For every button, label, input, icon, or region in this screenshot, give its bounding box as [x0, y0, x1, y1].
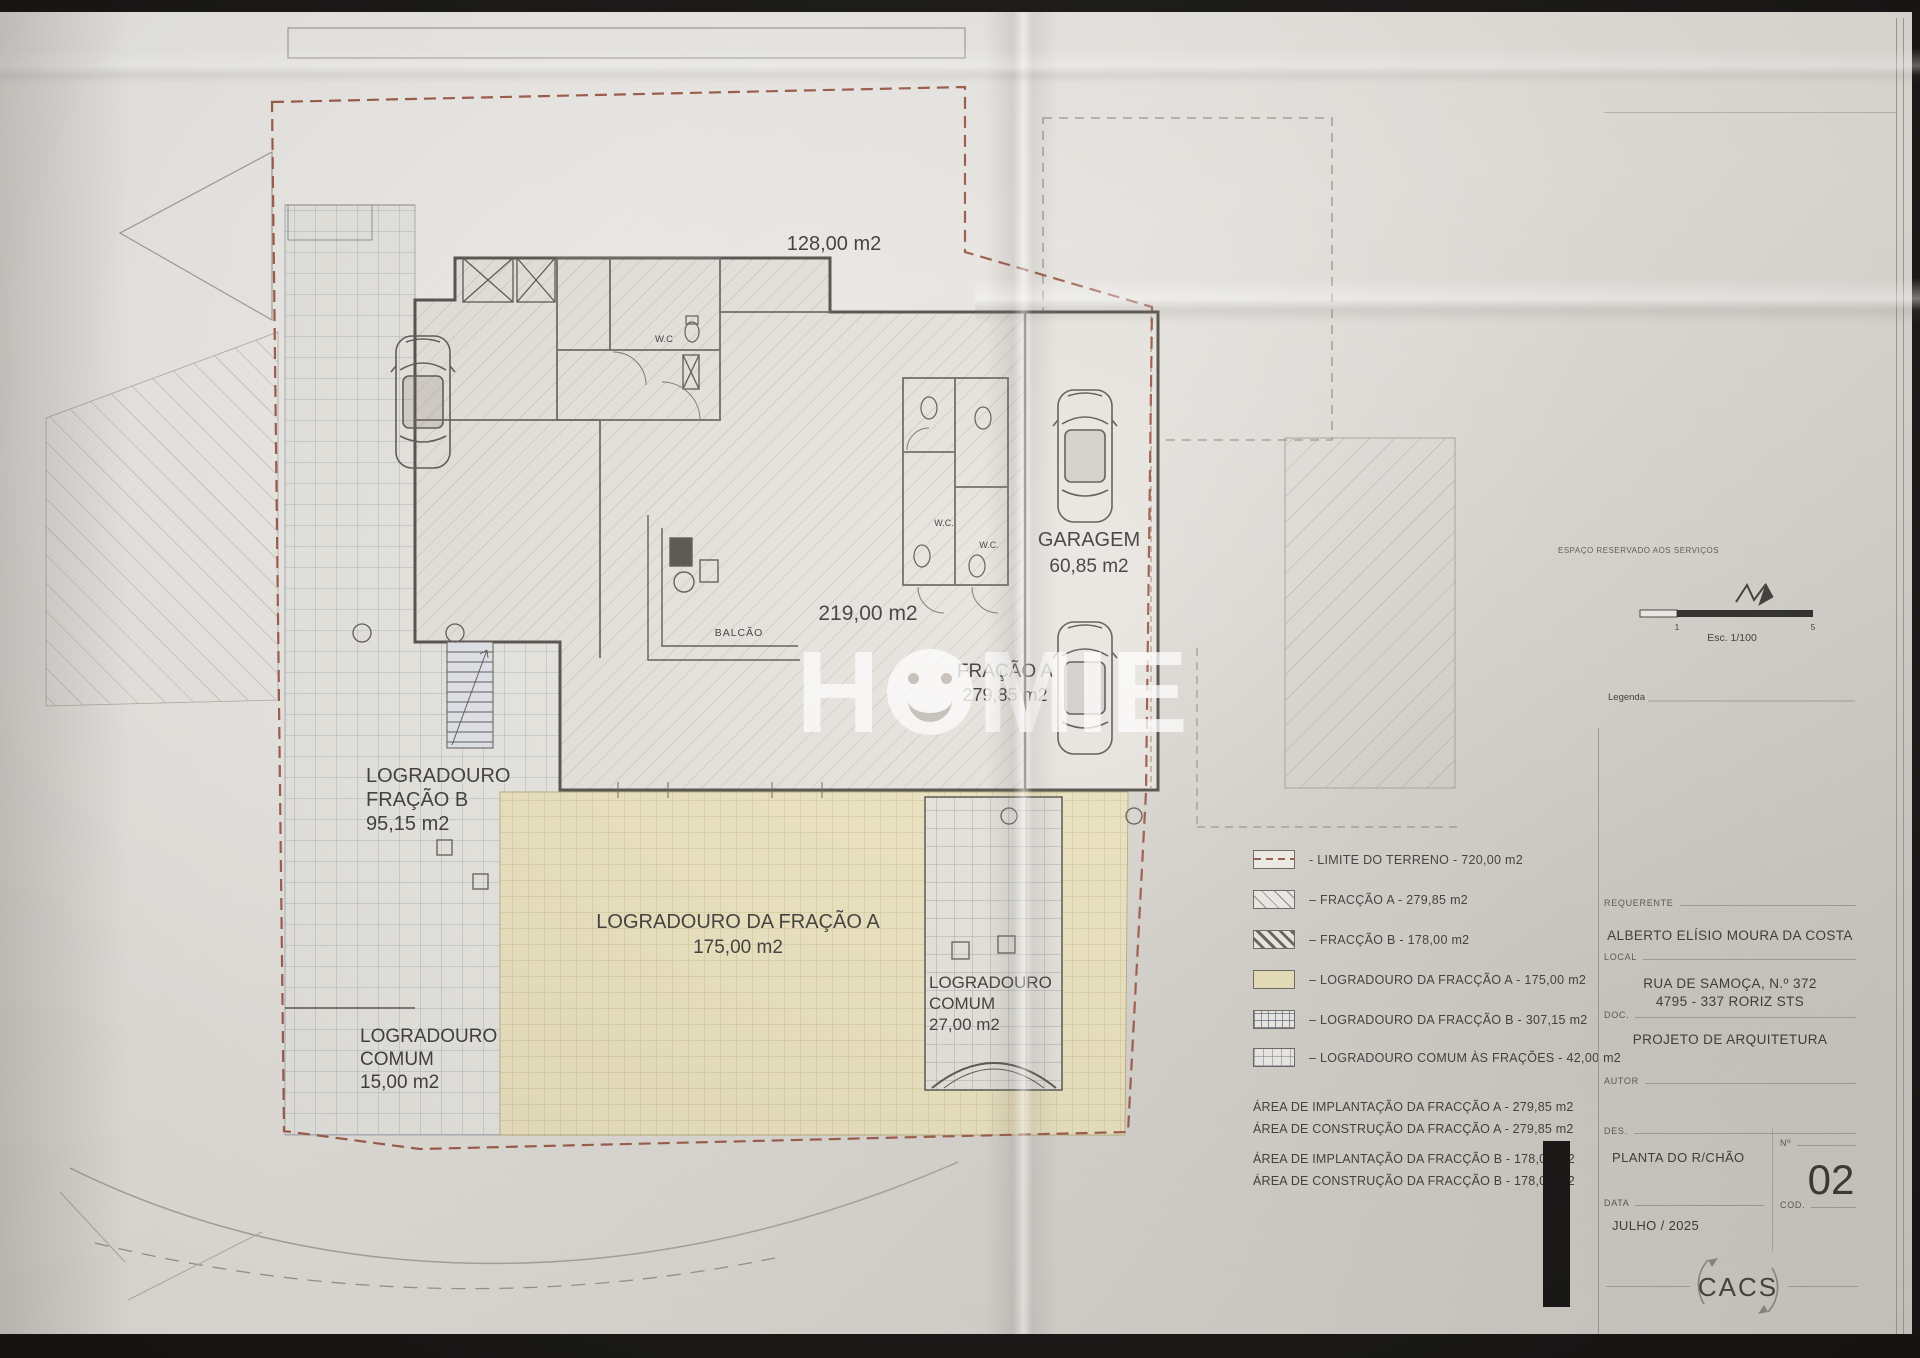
legend-swatch-limite: [1253, 850, 1295, 869]
field-data: DATA: [1604, 1198, 1764, 1208]
legend-swatch-fracao-b: [1253, 930, 1295, 949]
legend-label: – LOGRADOURO DA FRACÇÃO B - 307,15 m2: [1309, 1013, 1588, 1027]
label-log-comum-left-1: LOGRADOURO: [360, 1026, 497, 1047]
label-garagem: GARAGEM: [1038, 529, 1140, 551]
black-marker-bar: [1543, 1141, 1570, 1307]
titleblock-divider: [1772, 1128, 1773, 1252]
area-summary-line: ÁREA DE CONSTRUÇÃO DA FRACÇÃO B - 178,00…: [1253, 1174, 1575, 1188]
label-main-area: 219,00 m2: [818, 602, 917, 625]
des-value: PLANTA DO R/CHÃO: [1612, 1150, 1745, 1165]
area-summary-line: ÁREA DE IMPLANTAÇÃO DA FRACÇÃO B - 178,0…: [1253, 1152, 1575, 1166]
legend-swatch-logradouro-comum: [1253, 1048, 1295, 1067]
svg-text:Legenda: Legenda: [1608, 692, 1646, 703]
label-log-comum-left-3: 15,00 m2: [360, 1072, 439, 1093]
titleblock-top-line: [1604, 112, 1896, 113]
reserved-note: ESPAÇO RESERVADO AOS SERVIÇOS: [1558, 546, 1719, 555]
road-lines: [60, 1162, 958, 1300]
stamp-text: CACS: [1686, 1272, 1790, 1303]
stamp-line: [1606, 1286, 1690, 1287]
legend-label: – FRACÇÃO B - 178,00 m2: [1309, 933, 1469, 947]
legend-label: – LOGRADOURO COMUM ÀS FRAÇÕES - 42,00 m2: [1309, 1051, 1621, 1065]
legend-item: – LOGRADOURO DA FRACÇÃO A - 175,00 m2: [1253, 970, 1586, 989]
requerente-value: ALBERTO ELÍSIO MOURA DA COSTA: [1604, 928, 1856, 943]
scale-label: Esc. 1/100: [1707, 632, 1757, 644]
legend-label: - LIMITE DO TERRENO - 720,00 m2: [1309, 853, 1523, 867]
field-local: LOCAL: [1604, 952, 1856, 962]
label-log-a-2: 175,00 m2: [693, 937, 783, 958]
local-value-line2: 4795 - 337 RORIZ STS: [1604, 994, 1856, 1009]
legend-item: - LIMITE DO TERRENO - 720,00 m2: [1253, 850, 1523, 869]
field-autor: AUTOR: [1604, 1076, 1856, 1086]
label-top-area: 128,00 m2: [787, 233, 882, 255]
label-fracao-a-area: 279,85 m2: [962, 685, 1047, 705]
legend-label: – FRACÇÃO A - 279,85 m2: [1309, 893, 1468, 907]
label-fracao-a: FRAÇÃO A: [957, 660, 1053, 682]
legend-item: – LOGRADOURO DA FRACÇÃO B - 307,15 m2: [1253, 1010, 1588, 1029]
north-arrow-icon: [1736, 584, 1773, 605]
garagem-floor: [1025, 312, 1158, 790]
label-log-comum-left-2: COMUM: [360, 1049, 434, 1070]
label-log-a-1: LOGRADOURO DA FRAÇÃO A: [596, 909, 880, 933]
paper-border-line: [1903, 18, 1904, 1334]
data-value: JULHO / 2025: [1612, 1218, 1699, 1233]
scale-bar: 1 5 Esc. 1/100: [1640, 610, 1816, 644]
field-doc: DOC.: [1604, 1010, 1856, 1020]
label-log-comum-right-3: 27,00 m2: [929, 1015, 1000, 1034]
legend-label: – LOGRADOURO DA FRACÇÃO A - 175,00 m2: [1309, 973, 1586, 987]
label-log-b-2: FRAÇÃO B: [366, 787, 468, 811]
area-summary-line: ÁREA DE IMPLANTAÇÃO DA FRACÇÃO A - 279,8…: [1253, 1100, 1573, 1114]
field-numero: Nº: [1780, 1138, 1856, 1148]
label-log-b-1: LOGRADOURO: [366, 765, 510, 787]
label-log-b-3: 95,15 m2: [366, 813, 449, 835]
cacs-stamp: CACS: [1686, 1238, 1790, 1334]
paper-border-line: [1896, 18, 1897, 1334]
stairs: [447, 642, 493, 748]
field-requerente: REQUERENTE: [1604, 898, 1856, 908]
legend-swatch-logradouro-b: [1253, 1010, 1295, 1029]
legend-swatch-logradouro-a: [1253, 970, 1295, 989]
field-cod: COD.: [1780, 1200, 1856, 1210]
field-des: DES.: [1604, 1126, 1856, 1136]
photo-of-floor-plan: 128,00 m2 219,00 m2 BALCÃO W.C W.C. W.C.…: [0, 0, 1920, 1358]
logradouro-comum-surface: [925, 797, 1062, 1090]
sheet-number: 02: [1796, 1156, 1866, 1204]
legend-swatch-fracao-a: [1253, 890, 1295, 909]
scale-tick-start: 1: [1675, 623, 1680, 632]
label-balcao: BALCÃO: [715, 626, 764, 639]
label-wc-mid-b: W.C.: [979, 540, 999, 550]
scale-tick-end: 5: [1811, 623, 1816, 632]
label-wc-top: W.C: [655, 334, 673, 345]
legenda-heading: Legenda: [1608, 692, 1855, 703]
legend-item: – FRACÇÃO A - 279,85 m2: [1253, 890, 1468, 909]
doc-value: PROJETO DE ARQUITETURA: [1604, 1032, 1856, 1047]
label-log-comum-right-1: LOGRADOURO: [929, 973, 1052, 992]
legend-item: – LOGRADOURO COMUM ÀS FRAÇÕES - 42,00 m2: [1253, 1048, 1621, 1067]
label-garagem-area: 60,85 m2: [1049, 556, 1128, 577]
titleblock-border: [1598, 728, 1599, 1334]
stamp-line: [1788, 1286, 1858, 1287]
label-wc-mid-a: W.C.: [934, 518, 954, 528]
local-value-line1: RUA DE SAMOÇA, N.º 372: [1604, 976, 1856, 991]
label-log-comum-right-2: COMUM: [929, 994, 995, 1013]
area-summary-line: ÁREA DE CONSTRUÇÃO DA FRACÇÃO A - 279,85…: [1253, 1122, 1574, 1136]
legend-item: – FRACÇÃO B - 178,00 m2: [1253, 930, 1469, 949]
